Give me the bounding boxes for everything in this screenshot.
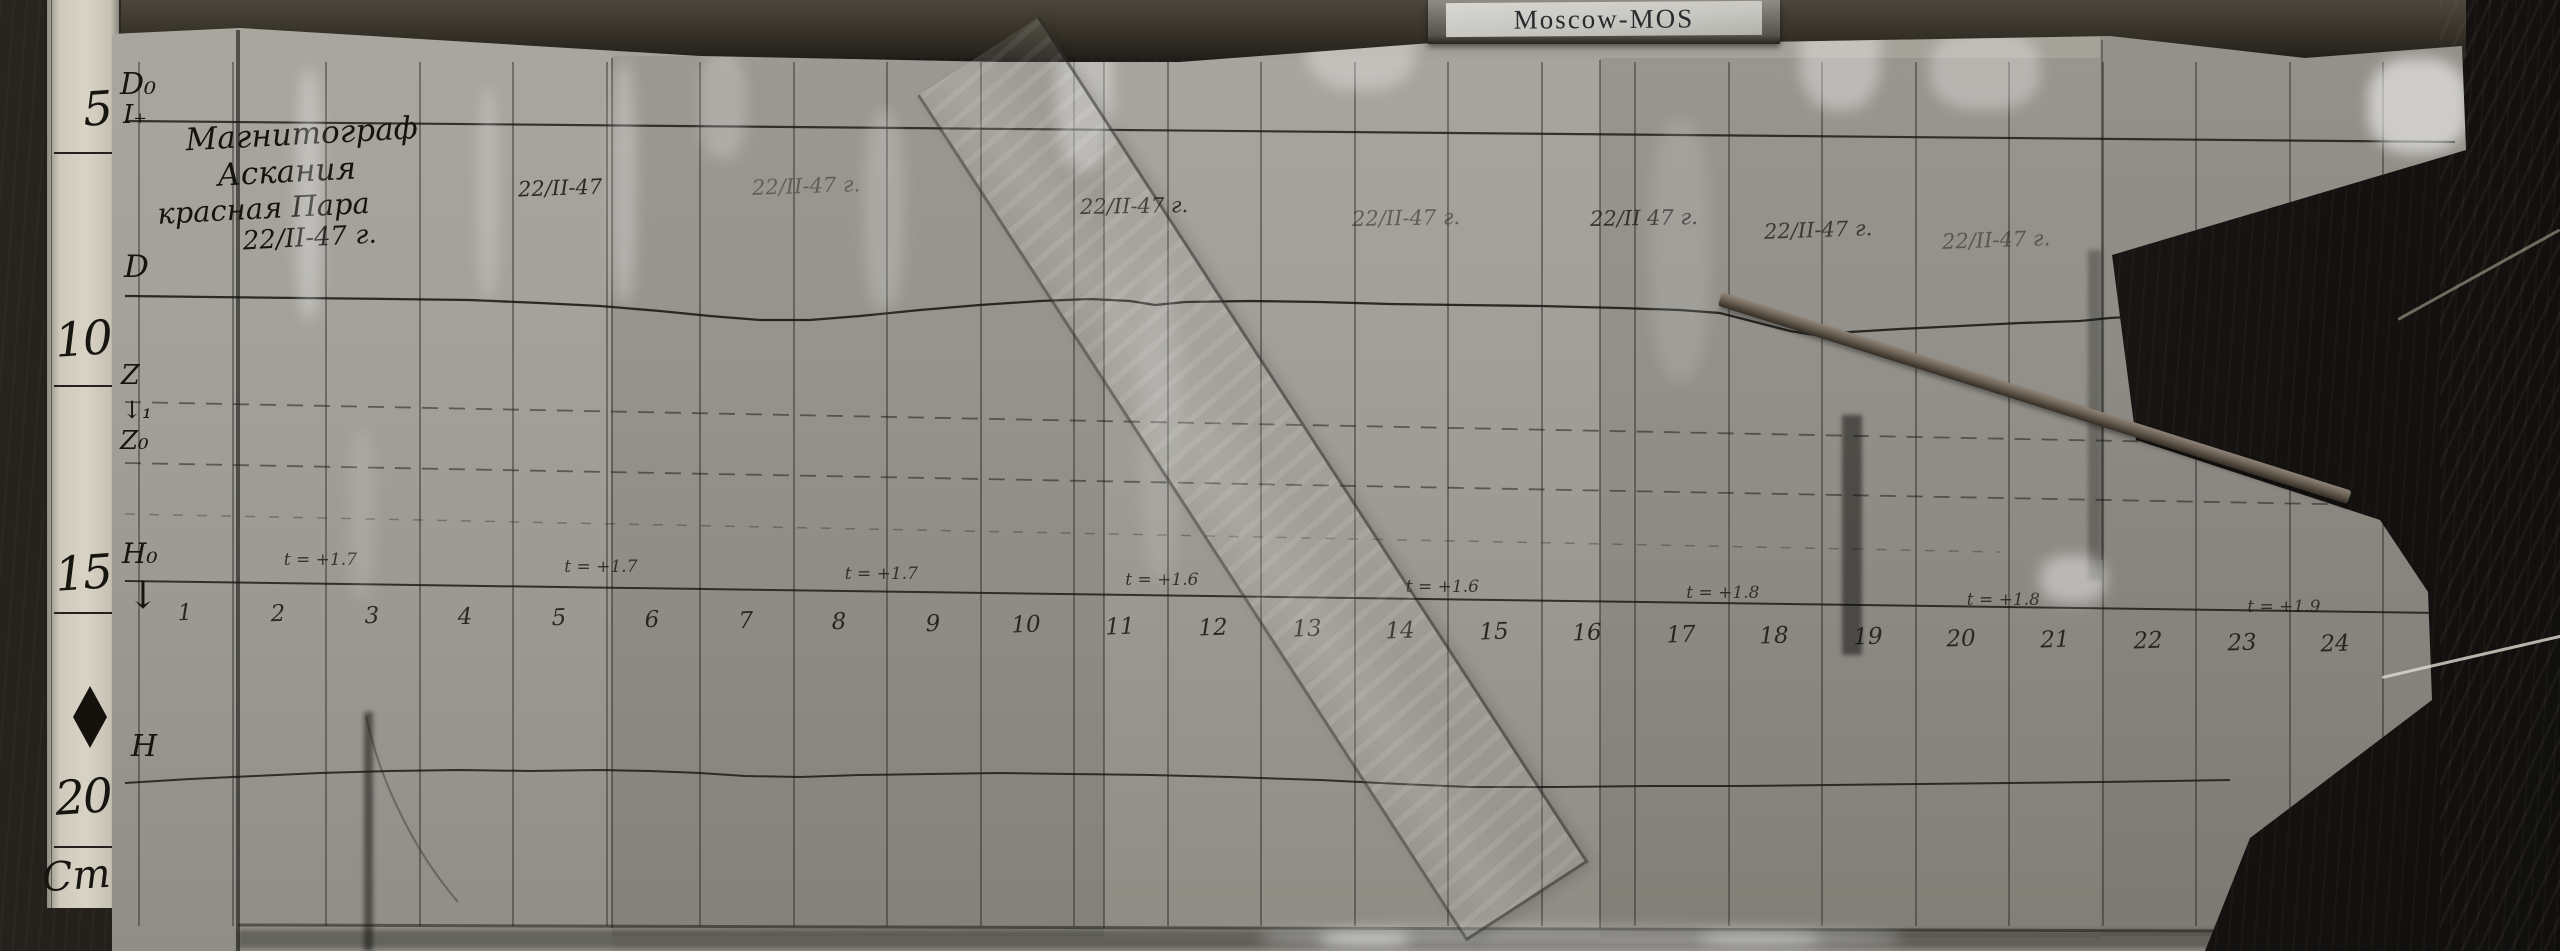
tape-glare (1260, 928, 1900, 948)
grid-line (138, 62, 140, 926)
label-plate-text: Moscow-MOS (1514, 3, 1695, 35)
tape-glare (2040, 555, 2106, 603)
tape-glare (612, 62, 636, 302)
hour-label: 3 (364, 604, 379, 627)
temp-annotation: t = +1.9 (2247, 597, 2320, 617)
dark-smudge (1842, 415, 1862, 655)
grid-line (1821, 62, 1823, 926)
ruler-mark-label: 15 (54, 548, 113, 599)
sheet-band (1600, 58, 2100, 938)
header-title-block: МагнитографАсканиякрасная Пара22/II-47 г… (145, 108, 472, 263)
hour-label: 4 (458, 606, 473, 629)
grid-line (1728, 62, 1730, 926)
margin-label: Z₀ (120, 428, 149, 454)
hour-label: 19 (1853, 626, 1883, 650)
sheet-join-edge (1599, 60, 1601, 928)
grid-line (1915, 62, 1917, 926)
ruler-mark-line (54, 612, 119, 614)
hour-label: 17 (1666, 623, 1696, 647)
tape-glare (700, 50, 746, 160)
grid-line (699, 62, 701, 926)
dark-smudge (364, 712, 373, 951)
hour-label: 22 (2133, 630, 2163, 654)
margin-label: D₀ (120, 70, 156, 100)
pencil-curve (366, 716, 458, 902)
grid-line (1634, 62, 1636, 926)
ruler-mark-line (54, 152, 119, 154)
margin-label: D (124, 252, 149, 283)
tape-glare (1650, 120, 1710, 380)
ruler-mark-label: 5 (81, 85, 112, 134)
hour-label: 2 (271, 603, 286, 626)
grid-line (2195, 62, 2197, 926)
baseline (125, 514, 2000, 552)
tape-glare (1320, 934, 1410, 944)
grid-line (1167, 62, 1169, 926)
grid-line (606, 62, 608, 926)
diamond-mark-icon (73, 686, 107, 748)
hour-label: 24 (2320, 633, 2350, 657)
declination-trace (125, 296, 2425, 335)
tape-glare (350, 430, 374, 600)
magnetogram-photo: 5101520Cm МагнитографАсканиякрасная Пара… (0, 0, 2560, 951)
hour-label: 21 (2040, 628, 2070, 652)
hour-label: 10 (1011, 614, 1041, 638)
baseline (125, 121, 2455, 142)
hour-label: 18 (1759, 624, 1789, 648)
temp-annotation: t = +1.7 (284, 550, 357, 570)
hour-label: 20 (1946, 627, 1976, 651)
grid-line (2008, 62, 2010, 926)
ruler-mark-line (54, 385, 119, 387)
sheet-join-edge (2101, 40, 2103, 560)
margin-label: H₀ (122, 540, 158, 568)
tape-glare (478, 88, 498, 298)
temp-annotation: t = +1.6 (1125, 570, 1198, 590)
sheet-join-edge (611, 58, 613, 928)
date-annotation: 22/II-47 г. (1352, 205, 1461, 231)
grid-line (886, 62, 888, 926)
margin-label: ↓₁ (122, 398, 152, 422)
hour-label: 11 (1105, 615, 1135, 639)
hour-label: 9 (925, 613, 940, 636)
date-annotation: 22/II-47 (518, 175, 603, 202)
ruler-mark-label: 20 (54, 772, 113, 823)
grid-line (2382, 62, 2384, 926)
hour-label: 12 (1198, 616, 1228, 640)
hour-label: 23 (2227, 631, 2257, 655)
date-annotation: 22/II 47 г. (1590, 205, 1698, 231)
ruler-mark-line (54, 846, 119, 848)
grid-line (2289, 62, 2291, 926)
temp-annotation: t = +1.7 (564, 557, 637, 577)
margin-label: I₊ (123, 102, 147, 128)
tape-glare (1700, 934, 1820, 944)
temp-annotation: t = +1.8 (1967, 590, 2040, 610)
ruler-unit-label: Cm (41, 854, 112, 899)
date-annotation: 22/II-47 г. (752, 172, 861, 200)
hour-label: 8 (832, 611, 847, 634)
tape-glare (864, 110, 904, 310)
label-plate-frame: Moscow-MOS (1428, 0, 1780, 44)
margin-label: H (131, 732, 157, 762)
hour-label: 7 (738, 610, 753, 633)
grid-line (512, 62, 514, 926)
grid-line (1354, 62, 1356, 926)
date-annotation: 22/II-47 г. (1764, 216, 1873, 244)
sheet-band (2100, 36, 2466, 936)
hour-label: 16 (1572, 622, 1602, 646)
margin-label: Z (121, 362, 140, 389)
hour-label: 5 (551, 607, 566, 630)
tape-glare (1930, 30, 2040, 110)
ruler-mark-label: 10 (54, 314, 113, 365)
label-plate: Moscow-MOS (1446, 1, 1762, 37)
bottom-fold-shadow (238, 930, 2228, 948)
date-annotation: 22/II-47 г. (1942, 226, 2051, 254)
hour-label: 1 (177, 602, 192, 625)
hour-label: 15 (1479, 620, 1509, 644)
hour-label: 6 (645, 609, 660, 632)
margin-label: ↓ (127, 576, 159, 614)
temp-annotation: t = +1.8 (1686, 583, 1759, 603)
temp-annotation: t = +1.6 (1406, 577, 1479, 597)
centimeter-ruler: 5101520Cm (44, 0, 121, 908)
temp-annotation: t = +1.7 (845, 564, 918, 584)
baseline (238, 925, 2228, 931)
